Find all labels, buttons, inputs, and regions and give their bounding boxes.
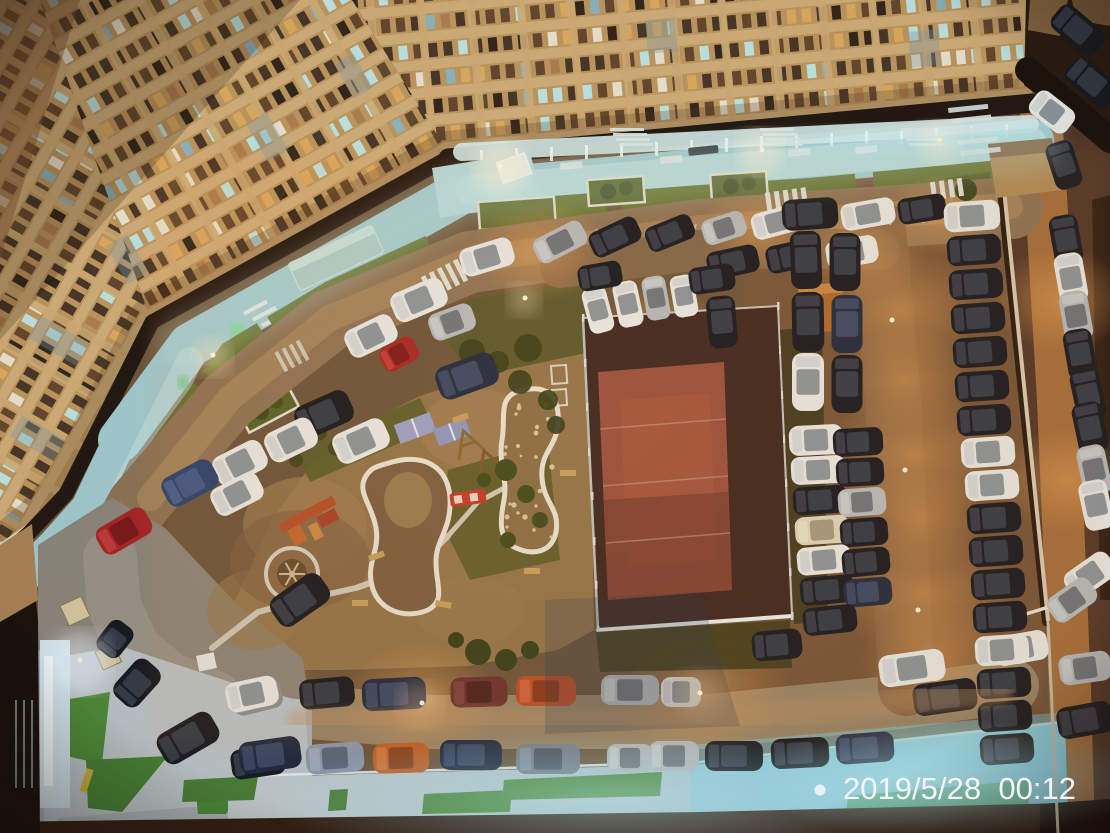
svg-text:2019/5/28 00:12: 2019/5/28 00:12 [843,771,1076,806]
